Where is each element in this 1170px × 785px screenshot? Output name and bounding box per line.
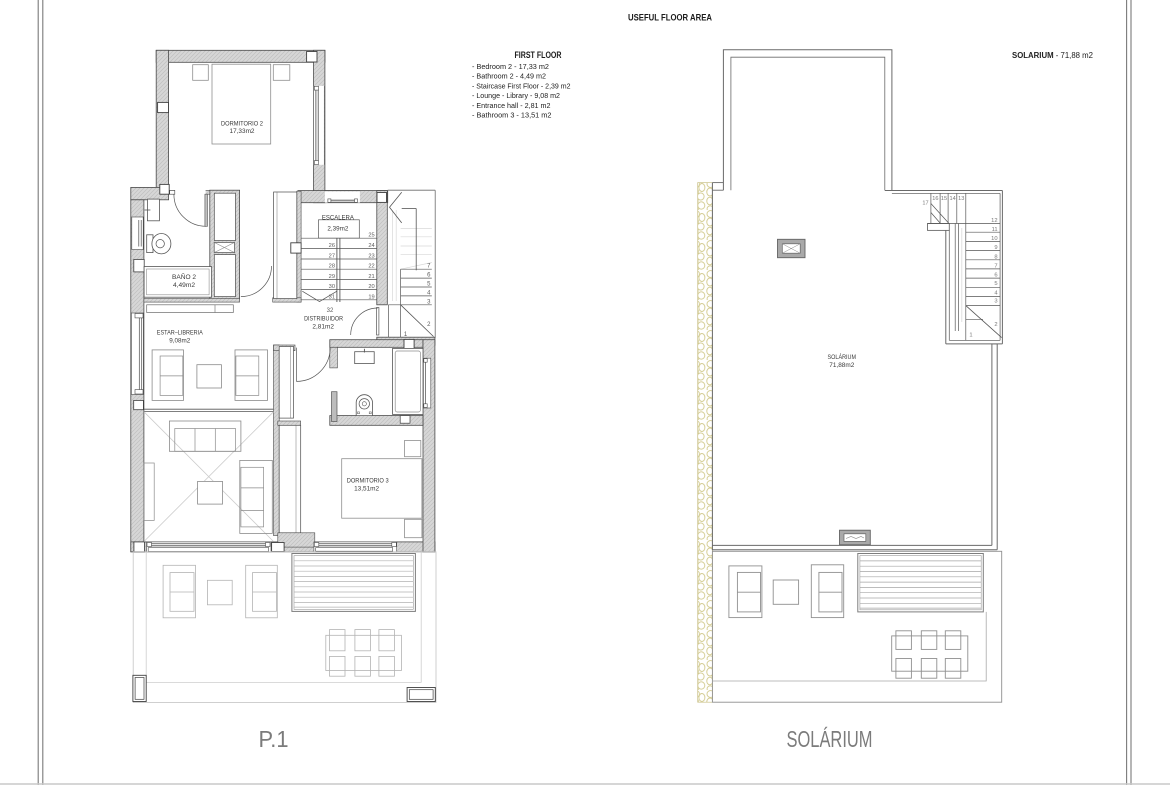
svg-text:DORMITORIO 3: DORMITORIO 3 (347, 478, 389, 485)
svg-text:- Bedroom 2 - 17,33 m2: - Bedroom 2 - 17,33 m2 (472, 62, 549, 71)
svg-text:- Bathroom 2 - 4,49 m2: - Bathroom 2 - 4,49 m2 (472, 72, 546, 81)
svg-text:6: 6 (994, 272, 997, 278)
svg-text:28: 28 (329, 264, 335, 270)
svg-text:- Bathroom 3 - 13,51 m2: - Bathroom 3 - 13,51 m2 (472, 111, 552, 120)
svg-text:SOLÁRIUM: SOLÁRIUM (828, 352, 857, 361)
svg-text:23: 23 (368, 253, 374, 259)
svg-text:SOLÁRIUM: SOLÁRIUM (787, 726, 873, 752)
svg-text:4,49m2: 4,49m2 (173, 282, 195, 289)
svg-text:2: 2 (994, 322, 997, 328)
svg-text:14: 14 (949, 196, 955, 202)
svg-text:17: 17 (922, 201, 928, 207)
svg-text:3: 3 (994, 299, 997, 305)
svg-text:24: 24 (368, 243, 374, 249)
svg-text:- Entrance hall - 2,81 m2: - Entrance hall - 2,81 m2 (472, 101, 551, 110)
svg-text:P.1: P.1 (259, 726, 289, 752)
svg-text:2,39m2: 2,39m2 (327, 226, 348, 233)
svg-text:16: 16 (932, 196, 938, 202)
svg-text:DORMITORIO 2: DORMITORIO 2 (221, 121, 263, 128)
svg-text:USEFUL FLOOR AREA: USEFUL FLOOR AREA (628, 13, 712, 24)
svg-text:20: 20 (368, 284, 374, 290)
svg-text:21: 21 (368, 274, 374, 280)
svg-text:29: 29 (329, 274, 335, 280)
svg-text:- Staircase First Floor - 2,39: - Staircase First Floor - 2,39 m2 (472, 81, 571, 90)
svg-text:17,33m2: 17,33m2 (230, 128, 255, 135)
svg-text:11: 11 (992, 227, 998, 233)
svg-text:31: 31 (329, 294, 335, 300)
svg-text:DISTRIBUIDOR: DISTRIBUIDOR (304, 315, 343, 322)
svg-text:26: 26 (329, 243, 335, 249)
svg-text:9,08m2: 9,08m2 (169, 338, 190, 345)
svg-text:9: 9 (994, 245, 997, 251)
svg-text:- Lounge - Library - 9,08 m2: - Lounge - Library - 9,08 m2 (472, 91, 560, 100)
svg-text:32: 32 (327, 308, 334, 314)
svg-text:71,88m2: 71,88m2 (829, 362, 854, 369)
svg-text:30: 30 (329, 284, 335, 290)
svg-text:5: 5 (994, 281, 997, 287)
svg-text:25: 25 (368, 233, 374, 239)
svg-text:13,51m2: 13,51m2 (354, 486, 379, 493)
svg-text:12: 12 (991, 218, 997, 224)
svg-text:ESTAR–LIBRERIA: ESTAR–LIBRERIA (157, 330, 204, 337)
svg-text:13: 13 (958, 196, 964, 202)
svg-text:27: 27 (329, 253, 335, 259)
svg-text:1: 1 (969, 332, 972, 338)
svg-text:15: 15 (941, 196, 947, 202)
svg-text:22: 22 (368, 264, 374, 270)
svg-text:2,81m2: 2,81m2 (312, 323, 334, 330)
svg-text:19: 19 (368, 294, 374, 300)
svg-text:7: 7 (994, 264, 997, 270)
svg-text:FIRST FLOOR: FIRST FLOOR (515, 50, 563, 60)
svg-text:SOLARIUM - 71,88 m2: SOLARIUM - 71,88 m2 (1012, 51, 1093, 60)
svg-text:10: 10 (991, 236, 997, 242)
svg-text:8: 8 (994, 254, 997, 260)
svg-text:BAÑO 2: BAÑO 2 (172, 272, 196, 281)
